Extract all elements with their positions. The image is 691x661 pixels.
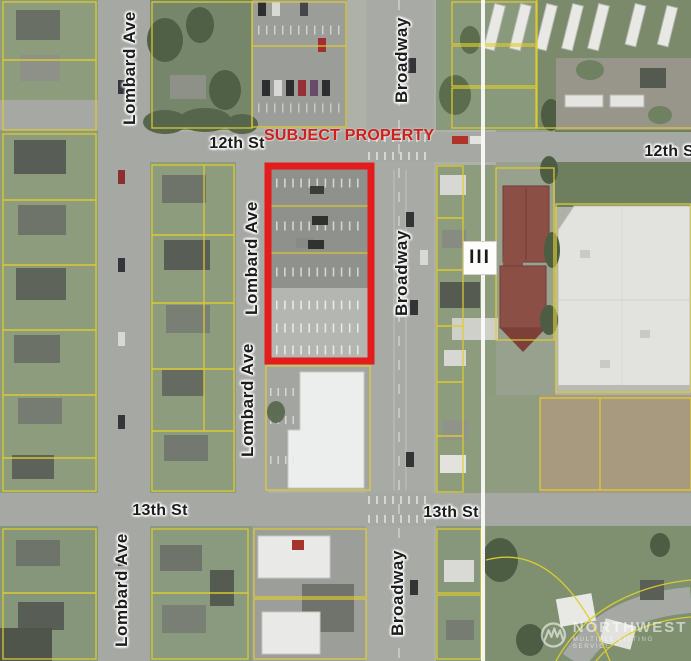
street-label-broadway-bottom: Broadway <box>388 550 408 636</box>
watermark-title: NORTHWEST <box>573 620 690 635</box>
power-line <box>481 0 485 661</box>
subject-property-label: SUBJECT PROPERTY <box>264 127 434 145</box>
street-label-12th-st-right: 12th St <box>644 143 691 161</box>
aerial-imagery <box>0 0 691 661</box>
building-marker-icon: III <box>463 241 497 275</box>
street-label-lombard-mid-upper: Lombard Ave <box>242 201 262 315</box>
street-label-broadway-top: Broadway <box>392 17 412 103</box>
road-13th-st <box>0 493 691 526</box>
commercial-block-south <box>252 526 366 661</box>
street-label-13th-st-right: 13th St <box>423 504 478 522</box>
watermark: NORTHWEST MULTIPLE LISTING SERVICE <box>540 614 690 656</box>
nwmls-logo-icon <box>540 621 567 649</box>
subject-property-lot <box>268 166 370 361</box>
watermark-tagline: MULTIPLE LISTING SERVICE <box>573 637 690 649</box>
street-label-12th-st-left: 12th St <box>209 135 264 153</box>
white-industrial-building <box>558 206 690 390</box>
road-minor-top-left <box>0 100 98 130</box>
street-label-lombard-bottom: Lombard Ave <box>112 533 132 647</box>
parking-lot-north <box>252 0 347 128</box>
building-south-of-subject <box>266 366 370 490</box>
street-label-lombard-mid-lower: Lombard Ave <box>238 343 258 457</box>
street-label-lombard-top: Lombard Ave <box>120 11 140 125</box>
aerial-map: SUBJECT PROPERTY 12th St 12th St 13th St… <box>0 0 691 661</box>
street-label-broadway-mid: Broadway <box>392 230 412 316</box>
street-label-13th-st-left: 13th St <box>132 502 187 520</box>
